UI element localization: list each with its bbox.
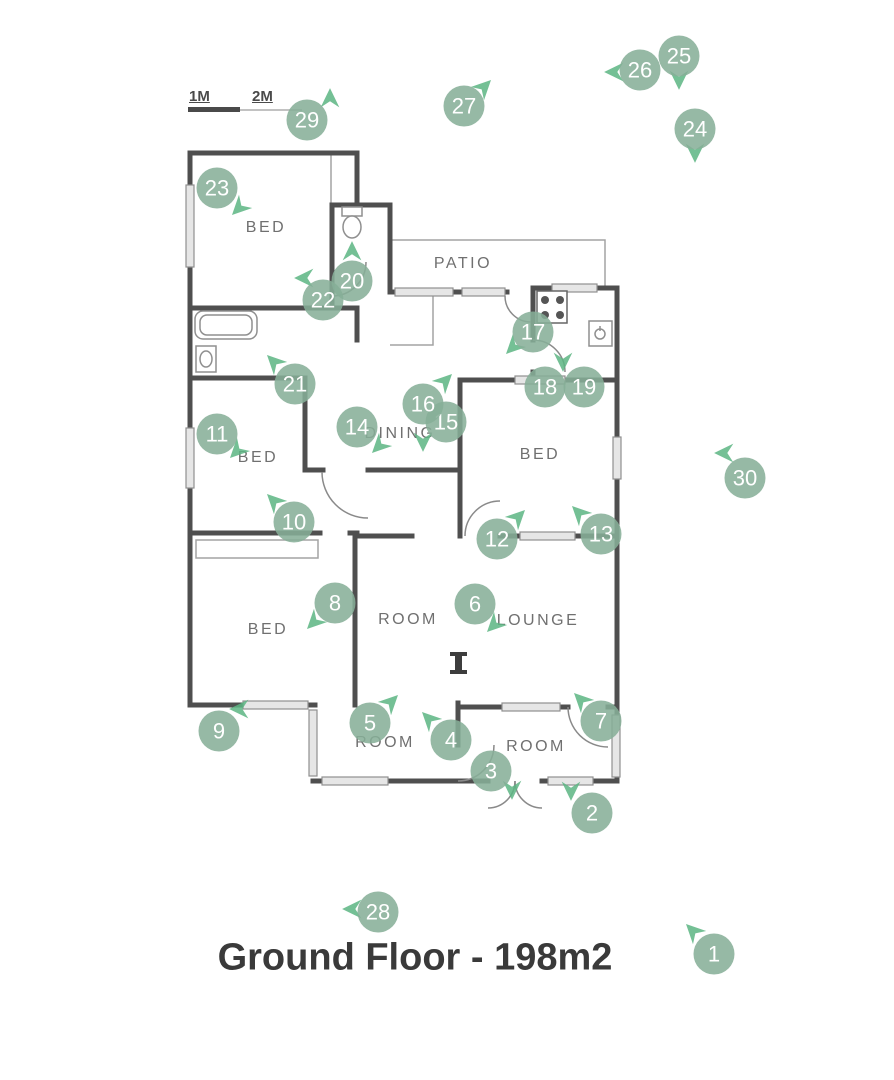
photo-marker-22[interactable]: 22 (303, 280, 344, 321)
photo-marker-9[interactable]: 9 (199, 711, 240, 752)
windows (186, 185, 621, 785)
photo-marker-3[interactable]: 3 (471, 751, 512, 792)
photo-marker-27[interactable]: 27 (444, 86, 485, 127)
room-label-bed-top-left: BED (246, 219, 286, 237)
floor-plan-page: 1M 2M BEDPATIODININGBEDBEDBEDROOMLOUNGER… (0, 0, 894, 1080)
photo-marker-25[interactable]: 25 (659, 36, 700, 77)
page-title: Ground Floor - 198m2 (218, 937, 613, 980)
room-label-bed-bottom-left: BED (248, 621, 288, 639)
photo-marker-5[interactable]: 5 (350, 703, 391, 744)
photo-marker-4[interactable]: 4 (431, 720, 472, 761)
photo-marker-28[interactable]: 28 (358, 892, 399, 933)
room-label-room-center: ROOM (378, 611, 438, 629)
bathroom-sink-icon (196, 346, 216, 372)
photo-marker-17[interactable]: 17 (513, 312, 554, 353)
room-label-bed-right: BED (520, 446, 560, 464)
kitchen-sink-icon (589, 321, 612, 346)
photo-marker-21[interactable]: 21 (275, 364, 316, 405)
photo-marker-1[interactable]: 1 (694, 934, 735, 975)
photo-marker-24[interactable]: 24 (675, 109, 716, 150)
room-label-room-bottom-right: ROOM (506, 738, 566, 756)
photo-marker-10[interactable]: 10 (274, 502, 315, 543)
photo-marker-6[interactable]: 6 (455, 584, 496, 625)
photo-marker-19[interactable]: 19 (564, 367, 605, 408)
room-label-patio: PATIO (434, 255, 492, 273)
scale-label-2m: 2M (252, 88, 273, 105)
patio-outline (196, 155, 605, 558)
scale-bar-dark-segment (188, 107, 240, 112)
photo-marker-7[interactable]: 7 (581, 701, 622, 742)
scale-label-1m: 1M (189, 88, 210, 105)
direction-arrow-icon (341, 240, 363, 262)
photo-marker-13[interactable]: 13 (581, 514, 622, 555)
toilet-icon (342, 207, 362, 238)
floor-plan-drawing (0, 0, 894, 1080)
photo-marker-8[interactable]: 8 (315, 583, 356, 624)
room-label-lounge: LOUNGE (497, 612, 580, 630)
column-icon (450, 652, 467, 674)
photo-marker-30[interactable]: 30 (725, 458, 766, 499)
photo-marker-26[interactable]: 26 (620, 50, 661, 91)
photo-marker-12[interactable]: 12 (477, 519, 518, 560)
photo-marker-23[interactable]: 23 (197, 168, 238, 209)
walls (190, 153, 617, 781)
photo-marker-2[interactable]: 2 (572, 793, 613, 834)
photo-marker-11[interactable]: 11 (197, 414, 238, 455)
bathtub-icon (195, 311, 257, 339)
photo-marker-16[interactable]: 16 (403, 384, 444, 425)
photo-marker-14[interactable]: 14 (337, 407, 378, 448)
photo-marker-29[interactable]: 29 (287, 100, 328, 141)
photo-marker-18[interactable]: 18 (525, 367, 566, 408)
